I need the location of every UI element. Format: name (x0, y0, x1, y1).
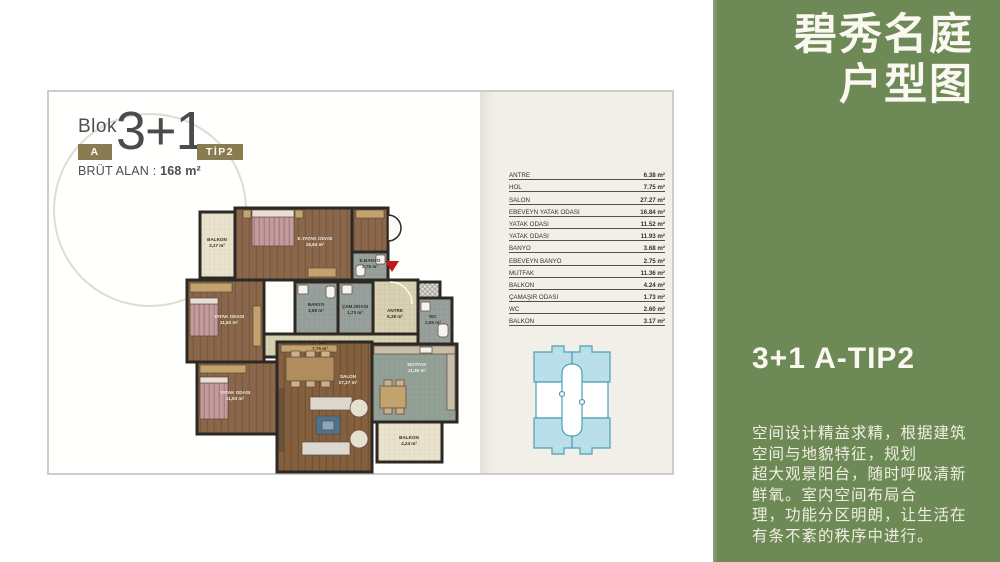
room-name: SALON (509, 197, 530, 204)
room-name: MUTFAK (509, 270, 534, 277)
key-plan (518, 342, 626, 456)
svg-text:BALKON: BALKON (399, 435, 419, 440)
svg-text:16,84 m²: 16,84 m² (306, 242, 325, 247)
svg-text:7,75 m²: 7,75 m² (312, 346, 328, 351)
description-line: 理，功能分区明朗，让生活在 (752, 506, 982, 527)
table-row: EBEVEYN YATAK ODASI16.84 m² (509, 205, 665, 217)
panel-subtitle: 3+1 A-TIP2 (752, 342, 915, 376)
svg-text:11,52 m²: 11,52 m² (220, 320, 239, 325)
room-name: YATAK ODASI (509, 233, 549, 240)
table-row: ANTRE6.38 m² (509, 168, 665, 180)
table-row: HOL7.75 m² (509, 180, 665, 192)
svg-text:E.BANYO: E.BANYO (360, 258, 381, 263)
key-plan-building (534, 346, 610, 454)
svg-text:HOL: HOL (315, 340, 325, 345)
gross-area-label: BRÜT ALAN : (78, 164, 156, 178)
room-name: BALKON (509, 282, 534, 289)
core-shaft (562, 364, 582, 436)
description-line: 空间设计精益求精，根据建筑 (752, 424, 982, 445)
table-row: BALKON3.17 m² (509, 314, 665, 326)
shaft (418, 282, 440, 298)
table-row: BANYO3.68 m² (509, 241, 665, 253)
table-row: MUTFAK11.36 m² (509, 266, 665, 278)
svg-text:11,93 m²: 11,93 m² (226, 396, 245, 401)
room-name: EBEVEYN BANYO (509, 258, 562, 265)
room-name: ÇAMAŞIR ODASI (509, 294, 558, 301)
svg-text:3,68 m²: 3,68 m² (308, 308, 324, 313)
page: ANTRE6.38 m² HOL7.75 m² SALON27.27 m² EB… (0, 0, 1000, 562)
room-area: 7.75 m² (644, 184, 665, 191)
table-row: ÇAMAŞIR ODASI1.73 m² (509, 290, 665, 302)
table-row: YATAK ODASI11.93 m² (509, 229, 665, 241)
room-area: 16.84 m² (640, 209, 665, 216)
room-area: 1.73 m² (644, 294, 665, 301)
table-row: YATAK ODASI11.52 m² (509, 217, 665, 229)
room-name: EBEVEYN YATAK ODASI (509, 209, 580, 216)
room-area: 27.27 m² (640, 197, 665, 204)
table-row: EBEVEYN BANYO2.75 m² (509, 253, 665, 265)
panel-title-line2: 户型图 (794, 60, 974, 110)
svg-text:ANTRE: ANTRE (387, 308, 403, 313)
room-area: 4.24 m² (644, 282, 665, 289)
block-badge: A (78, 144, 112, 160)
svg-text:SALON: SALON (340, 374, 357, 379)
description-line: 超大观景阳台，随时呼吸清新 (752, 465, 982, 486)
blok-label: Blok (78, 116, 117, 138)
gross-area-value: 168 m² (160, 164, 201, 178)
gross-area: BRÜT ALAN : 168 m² (78, 164, 201, 178)
table-row: WC2.60 m² (509, 302, 665, 314)
svg-text:1,73 m²: 1,73 m² (347, 310, 363, 315)
svg-text:27,27 m²: 27,27 m² (339, 380, 358, 385)
description-line: 有条不紊的秩序中进行。 (752, 527, 982, 548)
area-table: ANTRE6.38 m² HOL7.75 m² SALON27.27 m² EB… (509, 168, 665, 326)
room-area: 2.60 m² (644, 306, 665, 313)
svg-text:BANYO: BANYO (308, 302, 325, 307)
svg-text:6,38 m²: 6,38 m² (387, 314, 403, 319)
svg-text:3,17 m²: 3,17 m² (209, 243, 225, 248)
svg-text:YATAK ODASI: YATAK ODASI (214, 314, 245, 319)
room-area: 3.17 m² (644, 318, 665, 325)
room-name: BALKON (509, 318, 534, 325)
svg-text:11,36 m²: 11,36 m² (408, 368, 427, 373)
plan-type: 3+1 (116, 100, 205, 162)
tip-badge: TİP2 (197, 144, 243, 160)
room-area: 11.93 m² (641, 233, 665, 240)
room-name: BANYO (509, 245, 531, 252)
room-name: HOL (509, 184, 522, 191)
room-area: 2.75 m² (644, 258, 665, 265)
panel-title: 碧秀名庭 户型图 (794, 10, 974, 110)
svg-text:4,24 m²: 4,24 m² (401, 441, 417, 446)
entry-bay-arc (388, 215, 401, 241)
room-area: 11.36 m² (641, 270, 665, 277)
room-area: 6.38 m² (644, 172, 665, 179)
room-area: 3.68 m² (644, 245, 665, 252)
room-name: ANTRE (509, 172, 530, 179)
svg-text:WC: WC (429, 314, 437, 319)
table-row: SALON27.27 m² (509, 192, 665, 204)
svg-text:YATAK ODASI: YATAK ODASI (220, 390, 251, 395)
description-line: 鲜氧。室内空间布局合 (752, 486, 982, 507)
side-panel: 碧秀名庭 户型图 3+1 A-TIP2 空间设计精益求精，根据建筑 空间与地貌特… (713, 0, 1000, 562)
svg-text:ÇAM.ODASI: ÇAM.ODASI (342, 304, 368, 309)
room-name: YATAK ODASI (509, 221, 549, 228)
svg-text:BALKON: BALKON (207, 237, 227, 242)
svg-text:E.YATAK ODASI: E.YATAK ODASI (298, 236, 333, 241)
brochure-card: ANTRE6.38 m² HOL7.75 m² SALON27.27 m² EB… (47, 90, 674, 475)
svg-text:2,75 m²: 2,75 m² (362, 264, 378, 269)
right-page: ANTRE6.38 m² HOL7.75 m² SALON27.27 m² EB… (480, 92, 672, 473)
floor-plan: BALKON3,17 m² E.YATAK ODASI16,84 m² E.BA… (180, 194, 460, 474)
room-name: WC (509, 306, 519, 313)
description-line: 空间与地貌特征，规划 (752, 445, 982, 466)
panel-title-line1: 碧秀名庭 (794, 10, 974, 60)
svg-text:2,60 m²: 2,60 m² (425, 320, 441, 325)
svg-text:MUTFAK: MUTFAK (407, 362, 427, 367)
panel-description: 空间设计精益求精，根据建筑 空间与地貌特征，规划 超大观景阳台，随时呼吸清新 鲜… (752, 424, 982, 547)
room-area: 11.52 m² (641, 221, 665, 228)
table-row: BALKON4.24 m² (509, 278, 665, 290)
